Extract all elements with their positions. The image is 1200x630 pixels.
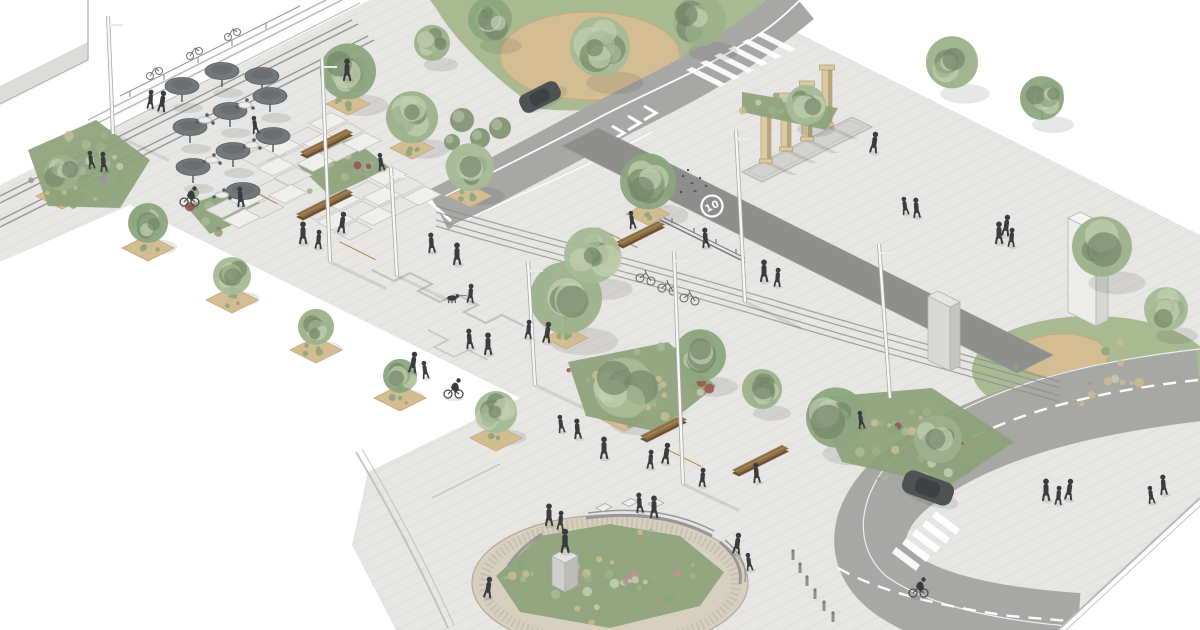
- tree: [806, 388, 866, 448]
- umbrella-shadow: [221, 128, 251, 138]
- tree: [386, 91, 438, 143]
- tree: [674, 329, 726, 381]
- pigeon: [680, 191, 682, 193]
- tree: [1072, 217, 1132, 277]
- bush: [450, 108, 474, 132]
- tree: [1144, 287, 1188, 331]
- tree: [213, 257, 251, 295]
- umbrella-shadow: [213, 88, 243, 98]
- plaza-rendering: 10: [0, 0, 1200, 630]
- bollard: [831, 611, 834, 622]
- tree: [298, 309, 334, 345]
- tree: [926, 36, 978, 88]
- cyclist: [444, 378, 463, 401]
- bollard: [822, 600, 825, 611]
- tree: [475, 391, 517, 433]
- tree: [914, 415, 962, 463]
- pigeon: [699, 177, 701, 179]
- pedestrian: [420, 360, 432, 381]
- bollard: [791, 549, 794, 560]
- umbrella-shadow: [173, 103, 203, 113]
- tree: [786, 85, 826, 125]
- bollard: [813, 588, 816, 599]
- tree: [620, 153, 676, 209]
- scene-canvas: 10: [0, 0, 1200, 630]
- building-northwest: [0, 0, 88, 104]
- tree: [742, 369, 782, 409]
- pigeon: [687, 169, 689, 171]
- pigeon: [682, 175, 684, 177]
- bush: [489, 117, 511, 139]
- tree: [570, 17, 630, 77]
- bollard: [805, 575, 808, 586]
- tree: [1020, 76, 1064, 120]
- umbrella-shadow: [261, 113, 291, 123]
- tree: [44, 155, 80, 191]
- bollard: [798, 562, 801, 573]
- light-pole: [108, 16, 123, 134]
- tree: [128, 203, 168, 243]
- umbrella-shadow: [224, 168, 254, 178]
- umbrella-shadow: [181, 144, 211, 154]
- tree: [414, 25, 450, 61]
- pigeon: [705, 185, 707, 187]
